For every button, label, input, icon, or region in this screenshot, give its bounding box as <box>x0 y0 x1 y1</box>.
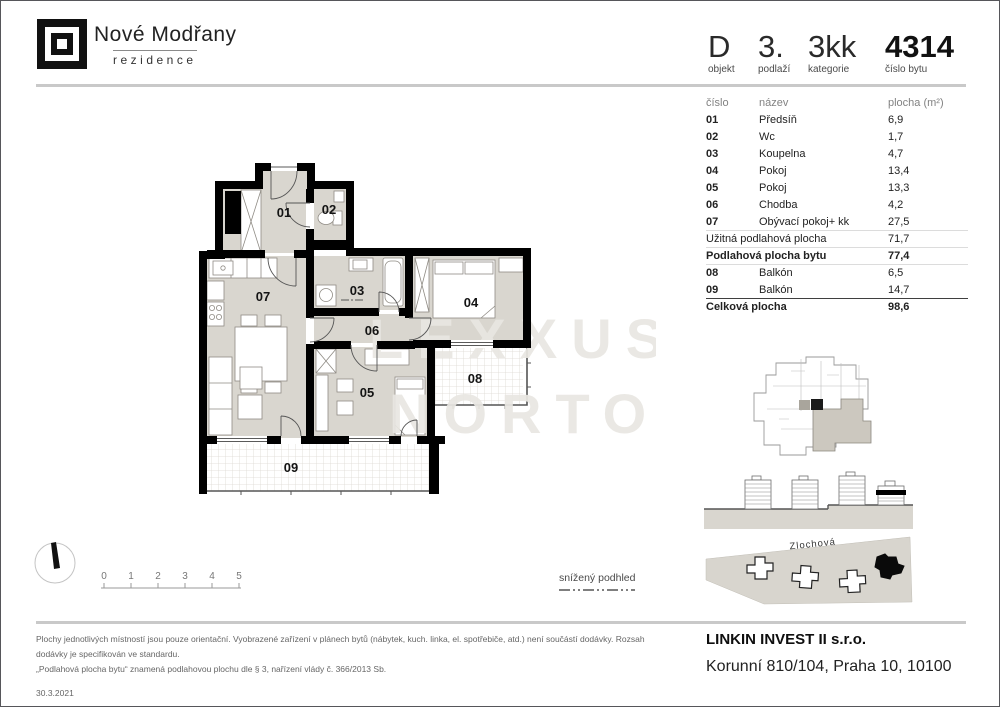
header-field-objekt: D objekt <box>708 31 735 75</box>
disclaimer-line-2: „Podlahová plocha bytu“ znamená podlahov… <box>36 662 666 677</box>
disclaimer-line-1: Plochy jednotlivých místností jsou pouze… <box>36 632 666 662</box>
header-field-cislo-bytu: 4314 číslo bytu <box>885 31 954 75</box>
footer-company: LINKIN INVEST II s.r.o. Korunní 810/104,… <box>706 631 952 676</box>
usable-area-value: 71,7 <box>888 233 968 245</box>
floor-area-value: 77,4 <box>888 250 968 262</box>
row-area: 1,7 <box>888 131 968 143</box>
row-name: Chodba <box>759 199 888 211</box>
date: 30.3.2021 <box>36 686 666 701</box>
scale-tick-4: 4 <box>209 571 215 582</box>
total-area-label: Celková plocha <box>706 301 888 313</box>
col-header-name: název <box>759 97 888 109</box>
site-elevation <box>704 472 913 529</box>
table-row: 08 Balkón 6,5 <box>706 264 968 281</box>
row-number: 06 <box>706 199 759 211</box>
row-area: 27,5 <box>888 216 968 228</box>
floorplan-sheet: LEXXUS NORTON <box>0 0 1000 707</box>
table-row: 06 Chodba 4,2 <box>706 196 968 213</box>
table-header-row: číslo název plocha (m²) <box>706 94 968 111</box>
room-label-08: 08 <box>468 371 482 386</box>
footer-disclaimer: Plochy jednotlivých místností jsou pouze… <box>36 632 666 701</box>
row-name: Wc <box>759 131 888 143</box>
unit-number-value: 4314 <box>885 31 954 63</box>
floor-area-label: Podlahová plocha bytu <box>706 250 888 262</box>
row-name: Pokoj <box>759 165 888 177</box>
room-label-04: 04 <box>464 295 479 310</box>
row-number: 02 <box>706 131 759 143</box>
row-name: Koupelna <box>759 148 888 160</box>
ceiling-legend-label: snížený podhled <box>559 572 636 584</box>
header-divider <box>36 84 966 87</box>
usable-area-row: Užitná podlahová plocha 71,7 <box>706 230 968 247</box>
scale-bar: 0 1 2 3 4 5 <box>101 571 242 588</box>
row-area: 6,5 <box>888 267 968 279</box>
row-name: Obývací pokoj+ kk <box>759 216 888 228</box>
company-name: LINKIN INVEST II s.r.o. <box>706 631 952 648</box>
ceiling-legend: snížený podhled <box>559 572 636 590</box>
table-row: 07 Obývací pokoj+ kk 27,5 <box>706 213 968 230</box>
brand-name: Nové Modřany <box>94 23 237 47</box>
row-name: Pokoj <box>759 182 888 194</box>
room-label-02: 02 <box>322 202 336 217</box>
row-area: 6,9 <box>888 114 968 126</box>
scale-tick-0: 0 <box>101 571 107 582</box>
header-field-kategorie: 3kk kategorie <box>808 31 856 75</box>
site-plan: Zlochová <box>706 537 912 604</box>
floor-area-row: Podlahová plocha bytu 77,4 <box>706 247 968 264</box>
col-header-area: plocha (m²) <box>888 97 968 109</box>
row-number: 08 <box>706 267 759 279</box>
room-label-09: 09 <box>284 460 298 475</box>
row-number: 03 <box>706 148 759 160</box>
north-compass-icon <box>35 542 75 583</box>
brand: Nové Modřany rezidence <box>94 23 237 69</box>
row-name: Předsíň <box>759 114 888 126</box>
total-area-value: 98,6 <box>888 301 968 313</box>
brand-logo-icon <box>37 19 87 69</box>
row-number: 01 <box>706 114 759 126</box>
podlazi-value: 3. <box>758 31 790 63</box>
room-label-01: 01 <box>277 205 291 220</box>
table-row: 09 Balkón 14,7 <box>706 281 968 298</box>
row-number: 09 <box>706 284 759 296</box>
table-row: 01 Předsíň 6,9 <box>706 111 968 128</box>
col-header-number: číslo <box>706 97 759 109</box>
room-label-06: 06 <box>365 323 379 338</box>
row-number: 05 <box>706 182 759 194</box>
scale-tick-3: 3 <box>182 571 188 582</box>
row-name: Balkón <box>759 284 888 296</box>
footer-divider <box>36 621 966 624</box>
unit-number-label: číslo bytu <box>885 64 954 75</box>
table-row: 03 Koupelna 4,7 <box>706 145 968 162</box>
row-number: 07 <box>706 216 759 228</box>
scale-tick-1: 1 <box>128 571 134 582</box>
row-area: 14,7 <box>888 284 968 296</box>
usable-area-label: Užitná podlahová plocha <box>706 233 888 245</box>
floor-plan: LEXXUS NORTON <box>199 163 715 495</box>
kategorie-value: 3kk <box>808 31 856 63</box>
objekt-value: D <box>708 31 735 63</box>
row-name: Balkón <box>759 267 888 279</box>
scale-tick-2: 2 <box>155 571 161 582</box>
total-area-row: Celková plocha 98,6 <box>706 298 968 315</box>
table-row: 05 Pokoj 13,3 <box>706 179 968 196</box>
scale-tick-5: 5 <box>236 571 242 582</box>
room-label-05: 05 <box>360 385 374 400</box>
room-label-07: 07 <box>256 289 270 304</box>
room-label-03: 03 <box>350 283 364 298</box>
table-row: 04 Pokoj 13,4 <box>706 162 968 179</box>
brand-subtitle: rezidence <box>113 50 197 67</box>
row-number: 04 <box>706 165 759 177</box>
key-plan <box>754 357 871 455</box>
kategorie-label: kategorie <box>808 64 856 75</box>
balcony-09 <box>207 444 439 495</box>
row-area: 4,2 <box>888 199 968 211</box>
watermark-line2: NORTON <box>389 382 715 445</box>
room-table: číslo název plocha (m²) 01 Předsíň 6,9 0… <box>706 94 968 315</box>
row-area: 13,4 <box>888 165 968 177</box>
table-row: 02 Wc 1,7 <box>706 128 968 145</box>
podlazi-label: podlaží <box>758 64 790 75</box>
header-field-podlazi: 3. podlaží <box>758 31 790 75</box>
objekt-label: objekt <box>708 64 735 75</box>
row-area: 4,7 <box>888 148 968 160</box>
company-address: Korunní 810/104, Praha 10, 10100 <box>706 658 952 676</box>
row-area: 13,3 <box>888 182 968 194</box>
